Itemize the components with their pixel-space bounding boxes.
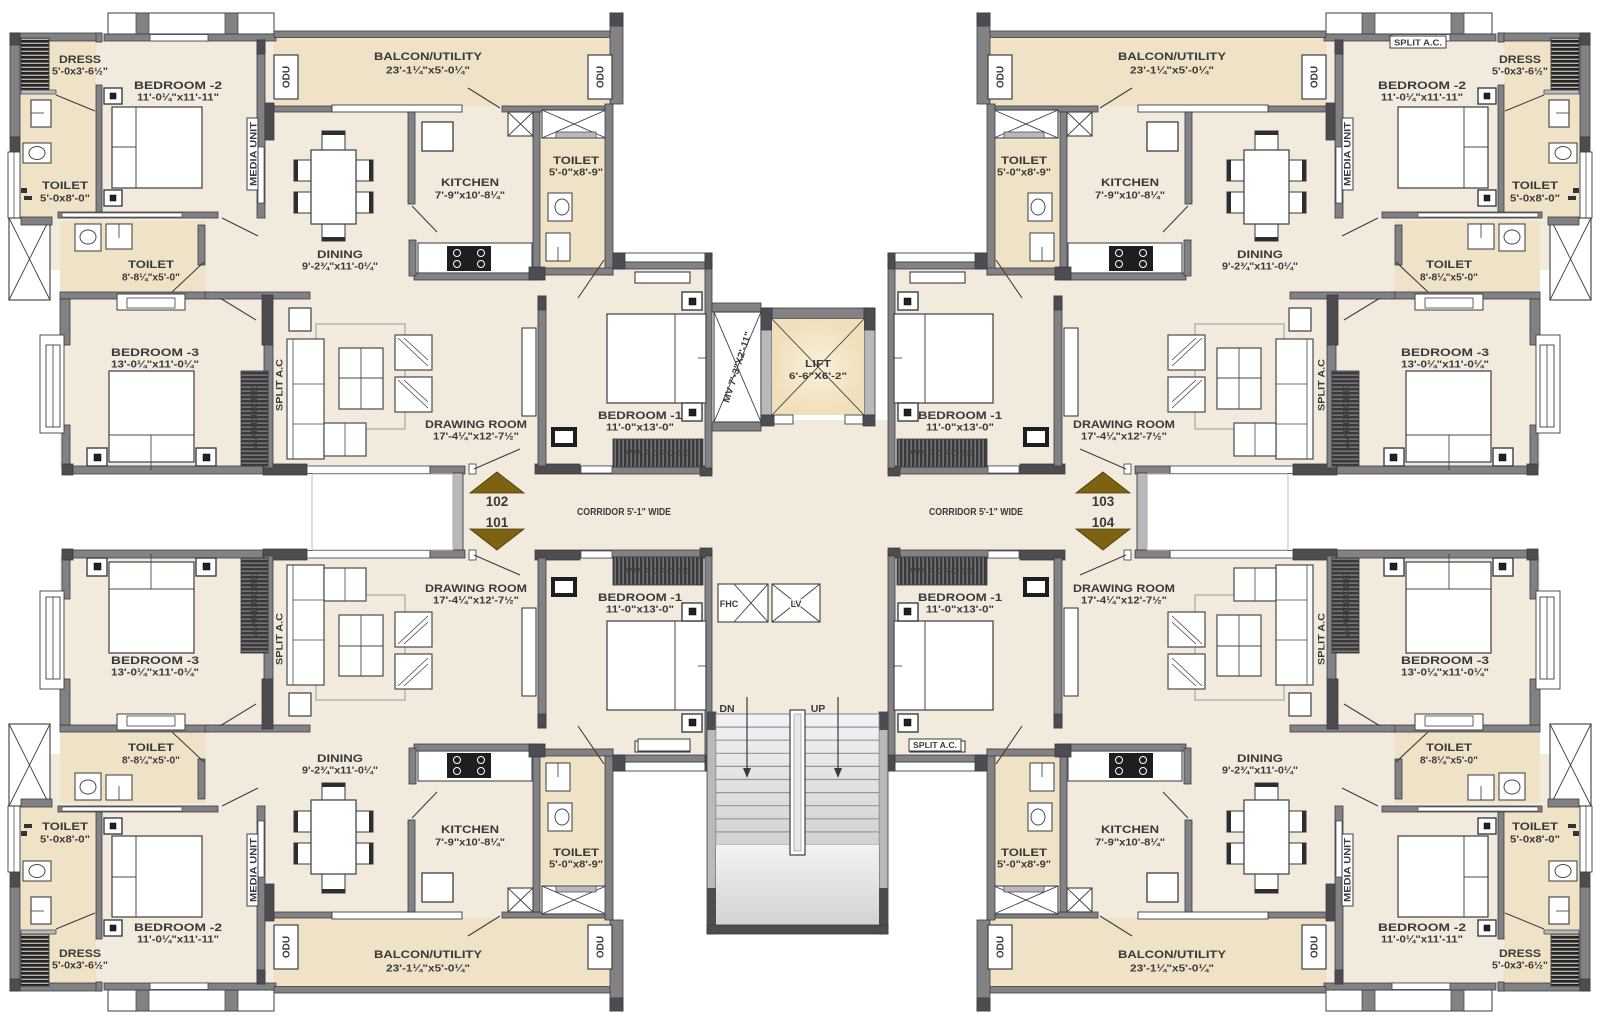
svg-text:KITCHEN: KITCHEN	[1101, 824, 1159, 836]
svg-text:TOILET: TOILET	[553, 847, 599, 859]
svg-text:11'-0¼"x11'-11": 11'-0¼"x11'-11"	[1381, 93, 1463, 104]
svg-text:ODU: ODU	[1310, 66, 1321, 88]
svg-text:13'-0¼"x11'-0¼": 13'-0¼"x11'-0¼"	[111, 360, 199, 371]
svg-text:CORRIDOR 5'-1" WIDE: CORRIDOR 5'-1" WIDE	[577, 507, 671, 518]
svg-text:7'-9"x10'-8¼": 7'-9"x10'-8¼"	[1095, 838, 1165, 849]
svg-text:WARDROBE: WARDROBE	[250, 386, 259, 450]
svg-text:WARDROBE: WARDROBE	[910, 449, 974, 458]
svg-text:104: 104	[1092, 515, 1115, 530]
svg-text:7'-9"x10'-8¼": 7'-9"x10'-8¼"	[435, 191, 505, 202]
svg-text:WARDROBE: WARDROBE	[626, 567, 690, 576]
svg-text:5'-0"x8'-9": 5'-0"x8'-9"	[997, 860, 1051, 871]
svg-text:MEDIA UNIT: MEDIA UNIT	[1342, 122, 1353, 186]
svg-text:23'-1¼"x5'-0¼": 23'-1¼"x5'-0¼"	[1130, 66, 1214, 77]
svg-text:8'-8¼"x5'-0": 8'-8¼"x5'-0"	[122, 273, 180, 284]
svg-text:BEDROOM -2: BEDROOM -2	[1378, 922, 1466, 934]
svg-text:BEDROOM -1: BEDROOM -1	[918, 410, 1002, 422]
svg-text:BEDROOM -3: BEDROOM -3	[111, 655, 199, 667]
svg-text:5'-0x8'-0": 5'-0x8'-0"	[40, 194, 90, 205]
svg-text:LIFT: LIFT	[805, 359, 831, 370]
svg-text:8'-8¼"x5'-0": 8'-8¼"x5'-0"	[1420, 756, 1478, 767]
svg-text:DINING: DINING	[1237, 753, 1283, 765]
svg-text:7'-9"x10'-8¼": 7'-9"x10'-8¼"	[1095, 191, 1165, 202]
svg-text:5'-0"x8'-9": 5'-0"x8'-9"	[549, 168, 603, 179]
svg-text:TOILET: TOILET	[553, 155, 599, 167]
svg-text:5'-0x8'-0": 5'-0x8'-0"	[1510, 194, 1560, 205]
svg-text:BEDROOM -1: BEDROOM -1	[918, 592, 1002, 604]
svg-text:5'-0"x8'-9": 5'-0"x8'-9"	[997, 168, 1051, 179]
svg-text:23'-1¼"x5'-0¼": 23'-1¼"x5'-0¼"	[1130, 964, 1214, 975]
svg-text:DN: DN	[719, 703, 734, 715]
svg-text:101: 101	[486, 515, 509, 530]
svg-text:DRESS: DRESS	[1499, 948, 1541, 960]
svg-text:SPLIT A.C: SPLIT A.C	[274, 359, 285, 411]
svg-text:KITCHEN: KITCHEN	[1101, 177, 1159, 189]
svg-text:SPLIT A.C: SPLIT A.C	[1316, 359, 1327, 411]
svg-text:5'-0x8'-0": 5'-0x8'-0"	[1510, 835, 1560, 846]
svg-text:KITCHEN: KITCHEN	[441, 177, 499, 189]
svg-text:WARDROBE: WARDROBE	[1342, 386, 1351, 450]
svg-text:5'-0x3'-6½": 5'-0x3'-6½"	[52, 67, 108, 78]
svg-text:BEDROOM -2: BEDROOM -2	[134, 80, 222, 92]
svg-text:BALCON/UTILITY: BALCON/UTILITY	[374, 949, 483, 961]
svg-text:TOILET: TOILET	[1426, 259, 1472, 271]
svg-text:ODU: ODU	[596, 66, 607, 88]
svg-text:WARDROBE: WARDROBE	[626, 449, 690, 458]
svg-text:TOILET: TOILET	[42, 180, 88, 192]
svg-text:TOILET: TOILET	[128, 259, 174, 271]
svg-text:ODU: ODU	[1310, 936, 1321, 958]
svg-text:BEDROOM -3: BEDROOM -3	[111, 347, 199, 359]
svg-text:11'-0"x13'-0": 11'-0"x13'-0"	[926, 423, 994, 434]
svg-text:5'-0x8'-0": 5'-0x8'-0"	[40, 835, 90, 846]
svg-text:102: 102	[486, 494, 509, 509]
svg-text:8'-8¼"x5'-0": 8'-8¼"x5'-0"	[122, 756, 180, 767]
svg-text:MEDIA UNIT: MEDIA UNIT	[1342, 838, 1353, 902]
svg-text:9'-2¾"x11'-0¼": 9'-2¾"x11'-0¼"	[302, 766, 378, 777]
svg-text:ODU: ODU	[996, 66, 1007, 88]
svg-text:CORRIDOR 5'-1" WIDE: CORRIDOR 5'-1" WIDE	[929, 507, 1023, 518]
svg-text:ODU: ODU	[596, 936, 607, 958]
svg-text:13'-0¼"x11'-0¼": 13'-0¼"x11'-0¼"	[111, 668, 199, 679]
svg-text:ODU: ODU	[282, 66, 293, 88]
svg-text:LV: LV	[791, 599, 802, 609]
svg-text:9'-2¾"x11'-0¼": 9'-2¾"x11'-0¼"	[1222, 262, 1298, 273]
svg-text:WARDROBE: WARDROBE	[250, 574, 259, 638]
svg-text:SPLIT A.C.: SPLIT A.C.	[913, 741, 957, 750]
svg-text:BEDROOM -2: BEDROOM -2	[134, 922, 222, 934]
svg-text:MEDIA UNIT: MEDIA UNIT	[248, 122, 259, 186]
svg-text:103: 103	[1092, 494, 1115, 509]
svg-text:6'-6"X6'-2": 6'-6"X6'-2"	[789, 371, 847, 382]
svg-text:BALCON/UTILITY: BALCON/UTILITY	[374, 51, 483, 63]
svg-text:DRAWING ROOM: DRAWING ROOM	[1073, 583, 1175, 595]
svg-text:TOILET: TOILET	[1426, 742, 1472, 754]
svg-text:13'-0¼"x11'-0¼": 13'-0¼"x11'-0¼"	[1401, 668, 1489, 679]
svg-text:11'-0"x13'-0": 11'-0"x13'-0"	[926, 605, 994, 616]
svg-text:TOILET: TOILET	[1512, 821, 1558, 833]
svg-text:17'-4¼"x12'-7½": 17'-4¼"x12'-7½"	[433, 432, 519, 443]
svg-text:8'-8¼"x5'-0": 8'-8¼"x5'-0"	[1420, 273, 1478, 284]
svg-text:9'-2¾"x11'-0¼": 9'-2¾"x11'-0¼"	[302, 262, 378, 273]
svg-text:13'-0¼"x11'-0¼": 13'-0¼"x11'-0¼"	[1401, 360, 1489, 371]
svg-text:DRAWING ROOM: DRAWING ROOM	[1073, 419, 1175, 431]
svg-text:SPLIT A.C.: SPLIT A.C.	[1394, 39, 1442, 48]
svg-text:TOILET: TOILET	[128, 742, 174, 754]
svg-text:23'-1¼"x5'-0¼": 23'-1¼"x5'-0¼"	[386, 66, 470, 77]
svg-text:UP: UP	[811, 703, 826, 715]
svg-text:BALCON/UTILITY: BALCON/UTILITY	[1118, 949, 1227, 961]
svg-text:DINING: DINING	[317, 753, 363, 765]
svg-text:5'-0"x8'-9": 5'-0"x8'-9"	[549, 860, 603, 871]
svg-text:11'-0¼"x11'-11": 11'-0¼"x11'-11"	[137, 93, 219, 104]
svg-text:5'-0x3'-6½": 5'-0x3'-6½"	[1492, 961, 1548, 972]
svg-text:DRESS: DRESS	[59, 54, 101, 66]
svg-text:17'-4¼"x12'-7½": 17'-4¼"x12'-7½"	[433, 596, 519, 607]
svg-text:BALCON/UTILITY: BALCON/UTILITY	[1118, 51, 1227, 63]
svg-text:BEDROOM -2: BEDROOM -2	[1378, 80, 1466, 92]
svg-text:DRESS: DRESS	[59, 948, 101, 960]
svg-text:ODU: ODU	[996, 936, 1007, 958]
svg-text:TOILET: TOILET	[1001, 155, 1047, 167]
svg-text:11'-0¼"x11'-11": 11'-0¼"x11'-11"	[1381, 935, 1463, 946]
svg-text:5'-0x3'-6½": 5'-0x3'-6½"	[52, 961, 108, 972]
svg-text:BEDROOM -1: BEDROOM -1	[598, 410, 682, 422]
svg-text:MEDIA UNIT: MEDIA UNIT	[248, 838, 259, 902]
svg-text:WARDROBE: WARDROBE	[910, 567, 974, 576]
svg-text:SPLIT A.C: SPLIT A.C	[274, 613, 285, 665]
svg-text:23'-1¼"x5'-0¼": 23'-1¼"x5'-0¼"	[386, 964, 470, 975]
svg-text:TOILET: TOILET	[42, 821, 88, 833]
svg-text:ODU: ODU	[282, 936, 293, 958]
svg-text:DINING: DINING	[1237, 249, 1283, 261]
svg-text:WARDROBE: WARDROBE	[1342, 574, 1351, 638]
svg-text:DRESS: DRESS	[1499, 54, 1541, 66]
svg-text:DRAWING ROOM: DRAWING ROOM	[425, 583, 527, 595]
svg-text:TOILET: TOILET	[1512, 180, 1558, 192]
svg-text:DRAWING ROOM: DRAWING ROOM	[425, 419, 527, 431]
svg-text:11'-0¼"x11'-11": 11'-0¼"x11'-11"	[137, 935, 219, 946]
svg-text:17'-4¼"x12'-7½": 17'-4¼"x12'-7½"	[1081, 596, 1167, 607]
svg-text:BEDROOM -3: BEDROOM -3	[1401, 347, 1489, 359]
svg-text:SPLIT A.C: SPLIT A.C	[1316, 613, 1327, 665]
svg-text:9'-2¾"x11'-0¼": 9'-2¾"x11'-0¼"	[1222, 766, 1298, 777]
svg-text:BEDROOM -1: BEDROOM -1	[598, 592, 682, 604]
svg-text:7'-9"x10'-8¼": 7'-9"x10'-8¼"	[435, 838, 505, 849]
svg-text:11'-0"x13'-0": 11'-0"x13'-0"	[606, 605, 674, 616]
svg-text:BEDROOM -3: BEDROOM -3	[1401, 655, 1489, 667]
svg-text:5'-0x3'-6½": 5'-0x3'-6½"	[1492, 67, 1548, 78]
svg-text:FHC: FHC	[720, 599, 739, 609]
svg-text:DINING: DINING	[317, 249, 363, 261]
svg-text:11'-0"x13'-0": 11'-0"x13'-0"	[606, 423, 674, 434]
svg-text:KITCHEN: KITCHEN	[441, 824, 499, 836]
svg-text:17'-4¼"x12'-7½": 17'-4¼"x12'-7½"	[1081, 432, 1167, 443]
svg-text:TOILET: TOILET	[1001, 847, 1047, 859]
